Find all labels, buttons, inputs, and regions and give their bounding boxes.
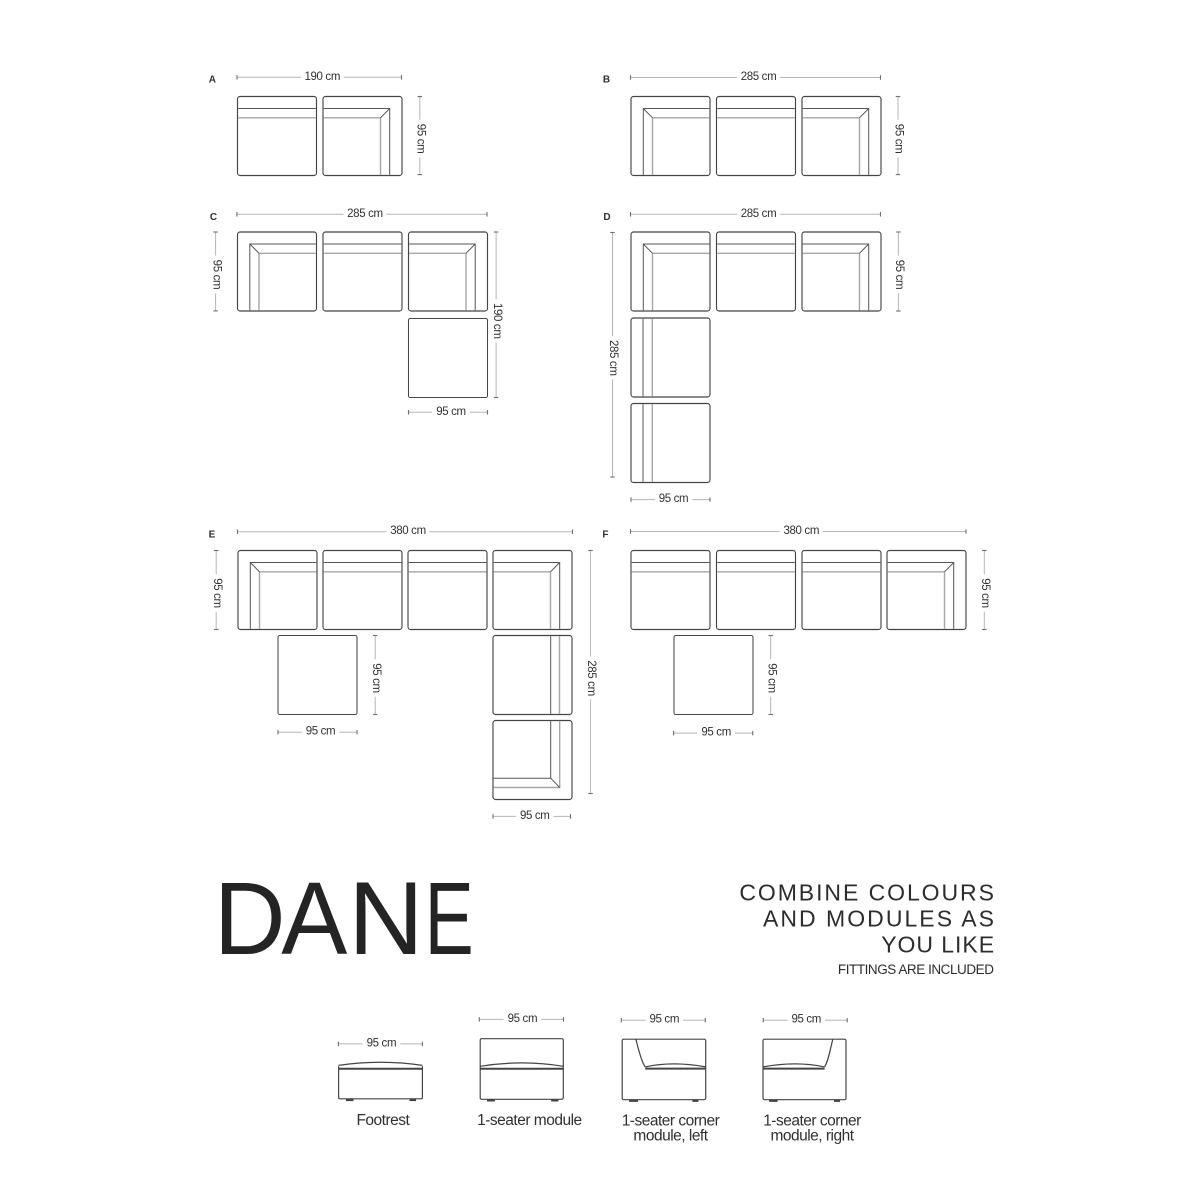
- svg-text:N: N: [348, 861, 423, 976]
- svg-text:95 cm: 95 cm: [211, 578, 223, 608]
- svg-text:module, left: module, left: [633, 1128, 708, 1145]
- svg-text:module, right: module, right: [770, 1128, 854, 1145]
- svg-text:95 cm: 95 cm: [415, 124, 427, 154]
- svg-text:285 cm: 285 cm: [741, 208, 777, 220]
- svg-text:285 cm: 285 cm: [607, 340, 619, 376]
- svg-text:AND MODULES AS: AND MODULES AS: [763, 906, 996, 932]
- svg-text:285 cm: 285 cm: [347, 208, 383, 220]
- svg-text:95 cm: 95 cm: [210, 260, 222, 290]
- svg-text:95 cm: 95 cm: [367, 1037, 397, 1049]
- svg-text:YOU LIKE: YOU LIKE: [881, 932, 995, 958]
- svg-text:190 cm: 190 cm: [304, 71, 340, 83]
- svg-text:95 cm: 95 cm: [520, 810, 550, 822]
- svg-text:95 cm: 95 cm: [508, 1013, 538, 1025]
- svg-text:380 cm: 380 cm: [783, 525, 819, 537]
- svg-text:A: A: [281, 861, 347, 976]
- svg-text:D: D: [603, 212, 610, 223]
- svg-text:95 cm: 95 cm: [306, 726, 336, 738]
- svg-text:95 cm: 95 cm: [893, 124, 905, 154]
- svg-text:380 cm: 380 cm: [390, 525, 426, 537]
- svg-text:D: D: [214, 861, 286, 976]
- svg-text:E: E: [209, 529, 216, 540]
- svg-text:95 cm: 95 cm: [650, 1014, 680, 1026]
- svg-text:95 cm: 95 cm: [659, 493, 689, 505]
- svg-text:E: E: [425, 862, 474, 977]
- svg-text:95 cm: 95 cm: [370, 663, 382, 693]
- svg-text:95 cm: 95 cm: [979, 578, 991, 608]
- svg-text:A: A: [209, 75, 216, 86]
- svg-text:95 cm: 95 cm: [791, 1014, 821, 1026]
- svg-text:285 cm: 285 cm: [741, 71, 777, 83]
- svg-text:95 cm: 95 cm: [701, 727, 731, 739]
- svg-text:1-seater module: 1-seater module: [477, 1112, 582, 1129]
- svg-text:285 cm: 285 cm: [585, 660, 597, 696]
- svg-text:190 cm: 190 cm: [491, 303, 503, 339]
- svg-text:COMBINE COLOURS: COMBINE COLOURS: [739, 880, 996, 906]
- svg-text:B: B: [603, 75, 610, 86]
- svg-text:C: C: [210, 212, 217, 223]
- svg-text:95 cm: 95 cm: [436, 406, 466, 418]
- svg-text:F: F: [602, 529, 608, 540]
- svg-text:95 cm: 95 cm: [765, 663, 777, 693]
- svg-text:95 cm: 95 cm: [893, 260, 905, 290]
- svg-text:FITTINGS ARE INCLUDED: FITTINGS ARE INCLUDED: [838, 962, 994, 977]
- svg-text:Footrest: Footrest: [356, 1112, 410, 1129]
